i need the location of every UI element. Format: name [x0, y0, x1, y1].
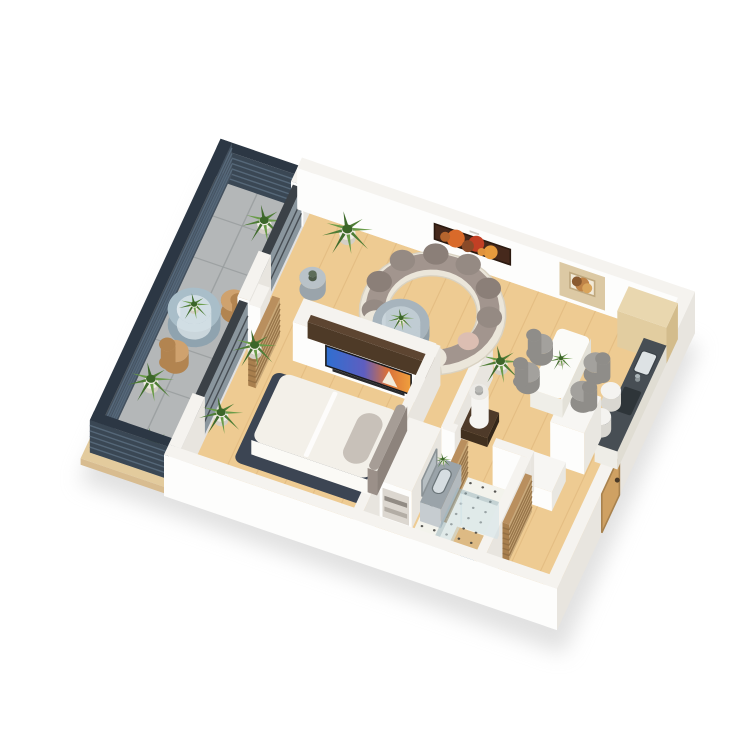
floor-plan-page [0, 0, 756, 756]
shower-glass-2-east-face [497, 502, 499, 539]
dining-wall-art-decal [582, 283, 592, 293]
living-room-artwork-decal [484, 245, 498, 259]
living-room-artwork-decal [478, 248, 486, 256]
scene-root [80, 139, 700, 654]
floor-plan-3d-render [0, 0, 756, 756]
living-room-artwork-decal [440, 232, 450, 242]
dining-wall-art-decal [572, 276, 582, 286]
bed-headboard-south-face [368, 468, 378, 496]
entry-door-decal [615, 478, 620, 483]
living-room-artwork-decal [462, 240, 474, 252]
